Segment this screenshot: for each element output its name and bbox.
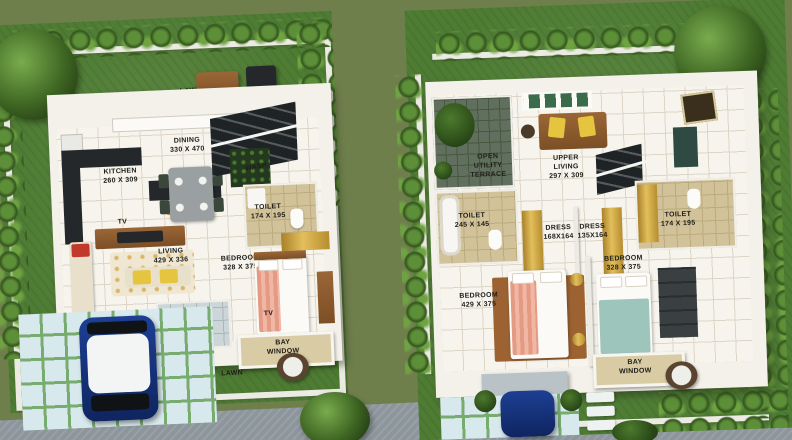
terrace-line3: TERRACE — [470, 170, 506, 180]
hedge-top — [435, 22, 708, 61]
wardrobe-charcoal — [658, 267, 698, 338]
bed-pillow — [282, 258, 302, 270]
dining-chair — [213, 198, 224, 212]
sofa-red-cushion — [71, 244, 90, 258]
bed-pillow — [540, 271, 562, 283]
kitchen-counter-left — [62, 162, 84, 245]
dining-chair — [158, 174, 169, 188]
bedroom-right-dim: 328 X 375 — [604, 263, 643, 273]
tv-living-label: TV — [117, 217, 127, 227]
toilet-wc — [488, 230, 502, 250]
potted-plant — [560, 389, 583, 412]
tv-bedroom-label: TV — [264, 309, 274, 319]
first-floor-plot: OPEN UTILITY TERRACE UPPER LIVING 297 X … — [405, 0, 792, 440]
toilet-left-dim: 245 X 145 — [455, 220, 490, 230]
media-panel — [673, 127, 698, 168]
bed-blanket-salmon — [256, 265, 281, 332]
car-windshield — [91, 393, 150, 412]
living-window — [522, 90, 593, 110]
toilet-wc — [687, 189, 701, 209]
garden-planter — [276, 352, 309, 381]
stepping-stone — [586, 392, 614, 403]
kitchen-label: KITCHEN 260 X 309 — [103, 166, 138, 186]
ground-floor-plot: LAWN KITCHEN 260 X 309 DINING 330 X 470 — [0, 11, 348, 413]
car-roof-below — [500, 390, 556, 438]
toilet-right-dim: 174 X 195 — [661, 219, 696, 229]
kitchen-dim: 260 X 309 — [103, 175, 138, 186]
yellow-cushion — [133, 270, 152, 285]
picture-frame — [680, 90, 718, 124]
kitchen-counter-top — [61, 147, 142, 168]
bedroom-wardrobe — [281, 231, 330, 251]
toilet-left-label: TOILET 245 X 145 — [454, 211, 489, 230]
dress-right-dim: 135X164 — [577, 231, 607, 241]
car-roof — [86, 333, 150, 394]
bedroom-left-dim: 429 X 375 — [459, 300, 498, 310]
dining-label: DINING 330 X 470 — [169, 135, 204, 155]
bedroom-right-label: BEDROOM 328 X 375 — [604, 254, 643, 274]
road-tree — [300, 392, 370, 440]
toilet-wc — [290, 208, 304, 229]
toilet-right-label: TOILET 174 X 195 — [660, 210, 695, 229]
bed-salmon — [508, 269, 569, 359]
upper-living-dim: 297 X 309 — [549, 171, 584, 181]
bed-teal — [596, 272, 653, 356]
toilet-label: TOILET 174 X 195 — [250, 202, 285, 222]
bed-pillow — [258, 259, 278, 271]
tv-screen — [117, 230, 163, 243]
bed-pillow — [625, 275, 647, 287]
lawn-bottom-label: LAWN — [221, 368, 243, 378]
sofa-cushion — [548, 117, 566, 139]
bedroom-left-label: BEDROOM 429 X 375 — [459, 291, 498, 311]
stepping-stone — [587, 406, 615, 417]
yellow-cushion — [159, 269, 178, 284]
dining-dim: 330 X 470 — [170, 144, 205, 155]
bed-pillow — [600, 276, 622, 288]
dress-left-label: DRESS 168X164 — [543, 223, 574, 242]
toilet-vanity — [637, 184, 659, 243]
toilet-dim: 174 X 195 — [251, 211, 286, 222]
bedroom-tv-unit — [317, 271, 335, 324]
bed-blanket-teal — [599, 298, 651, 354]
living-dim: 429 X 336 — [154, 255, 189, 266]
bay-line2: WINDOW — [619, 366, 652, 376]
road-bush — [612, 420, 658, 440]
car — [79, 315, 159, 422]
first-floor-building: OPEN UTILITY TERRACE UPPER LIVING 297 X … — [425, 71, 768, 398]
dining-table — [168, 166, 214, 222]
dress-left-dim: 168X164 — [543, 232, 573, 242]
living-label: LIVING 429 X 336 — [153, 246, 188, 266]
floor-plan-render: LAWN KITCHEN 260 X 309 DINING 330 X 470 — [0, 0, 792, 440]
upper-living-label: UPPER LIVING 297 X 309 — [548, 153, 584, 181]
dining-chair — [159, 200, 170, 214]
sofa-cushion — [577, 115, 596, 137]
dress-right-label: DRESS 135X164 — [577, 222, 608, 241]
bed-pillow — [512, 272, 534, 284]
utility-terrace-label: OPEN UTILITY TERRACE — [470, 152, 507, 181]
hedge-bottom — [658, 388, 789, 433]
bed-blanket-salmon — [510, 280, 539, 355]
stepping-stone — [587, 420, 615, 431]
bay-window-label: BAY WINDOW — [619, 357, 652, 376]
